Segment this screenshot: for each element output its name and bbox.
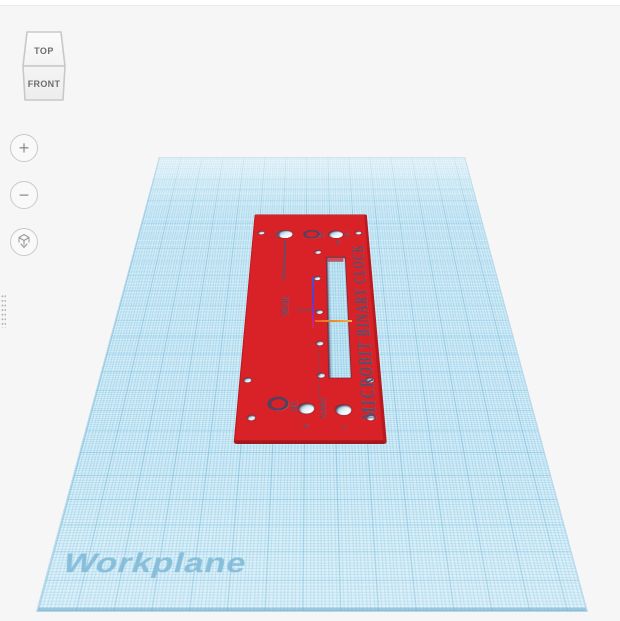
view-cube-top-label[interactable]: TOP: [34, 46, 54, 56]
label-min: MIN: [345, 232, 351, 238]
view-cube[interactable]: TOP FRONT: [20, 28, 68, 106]
label-button-b: B: [302, 424, 310, 427]
minus-icon: −: [19, 186, 30, 204]
label-button-a: A: [340, 426, 348, 430]
label-hr: HR: [336, 240, 342, 244]
fit-view-button[interactable]: [10, 228, 38, 256]
display-slot-step: [328, 258, 344, 261]
button-hole-alarm: [335, 405, 351, 415]
zoom-out-button[interactable]: −: [10, 181, 38, 209]
screw-hole-bottom-left: [247, 415, 255, 420]
axis-indicator-horizontal: [315, 320, 352, 322]
label-sel: SEL: [289, 401, 299, 412]
led-hole-3: [316, 310, 323, 314]
panel-drag-handle[interactable]: [1, 294, 6, 328]
plus-icon: +: [19, 139, 30, 157]
faceplate-object[interactable]: BRT SET MIN HR MODE SEL ALARM B A MICROB…: [234, 214, 387, 444]
axis-indicator-vertical: [312, 277, 314, 328]
workplane-grid[interactable]: Workplane: [38, 157, 587, 611]
fit-view-icon: [16, 233, 32, 252]
zoom-in-button[interactable]: +: [10, 134, 38, 162]
label-alarm: ALARM: [319, 399, 328, 419]
led-hole-2: [314, 277, 321, 281]
engraved-line-brt: [283, 240, 286, 281]
workplane-label: Workplane: [57, 547, 249, 580]
workplane-edge: [38, 608, 587, 611]
view-cube-front-label[interactable]: FRONT: [28, 79, 61, 89]
screw-hole-top-left: [258, 231, 264, 234]
label-set: SET: [319, 232, 326, 238]
viewport-canvas[interactable]: Workplane: [0, 5, 620, 621]
label-mode: MODE: [279, 296, 291, 315]
screw-hole-top-right: [355, 231, 361, 234]
button-hole-sel: [298, 403, 314, 413]
scene-3d: Workplane: [0, 6, 620, 621]
display-slot: [327, 257, 351, 377]
label-brt: BRT: [275, 231, 282, 238]
led-hole-1: [315, 250, 321, 253]
label-plate-title: MICROBIT BINARY CLOCK: [348, 244, 382, 419]
engraved-ring-top: [303, 230, 320, 239]
screw-hole-mid-left: [244, 378, 252, 383]
engraved-ring-bottom: [267, 397, 289, 411]
button-hole-set: [329, 231, 343, 238]
engraved-dashed-line: [318, 347, 320, 401]
led-hole-4: [316, 341, 323, 345]
